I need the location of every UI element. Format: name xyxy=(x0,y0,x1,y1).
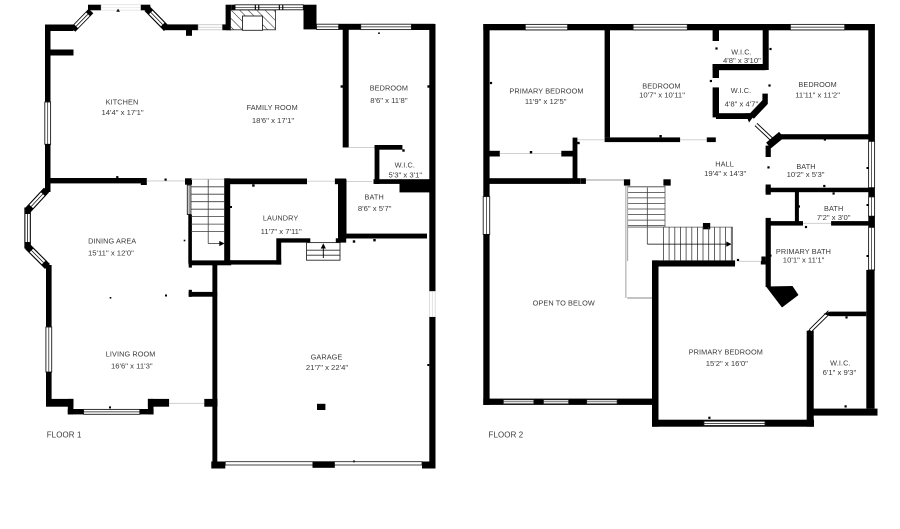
svg-text:W.I.C.: W.I.C. xyxy=(830,358,850,367)
svg-text:PRIMARY BEDROOM: PRIMARY BEDROOM xyxy=(509,86,583,95)
svg-text:KITCHEN: KITCHEN xyxy=(106,98,139,107)
svg-text:PRIMARY BEDROOM: PRIMARY BEDROOM xyxy=(689,348,763,357)
svg-text:19'4" x 14'3": 19'4" x 14'3" xyxy=(704,169,746,178)
svg-text:FAMILY ROOM: FAMILY ROOM xyxy=(247,103,298,112)
svg-text:10'1" x 11'1": 10'1" x 11'1" xyxy=(783,256,825,265)
svg-text:21'7" x 22'4": 21'7" x 22'4" xyxy=(306,363,348,372)
svg-text:11'11" x 11'2": 11'11" x 11'2" xyxy=(795,91,840,100)
svg-text:8'6" x 11'8": 8'6" x 11'8" xyxy=(370,96,408,105)
svg-text:15'11" x 12'0": 15'11" x 12'0" xyxy=(88,249,134,258)
svg-text:6'1" x 9'3": 6'1" x 9'3" xyxy=(823,368,857,377)
svg-text:8'6" x 5'7": 8'6" x 5'7" xyxy=(358,204,392,213)
svg-text:4'8" x 3'10": 4'8" x 3'10" xyxy=(723,56,761,65)
svg-text:DINING AREA: DINING AREA xyxy=(88,237,136,246)
svg-text:OPEN TO BELOW: OPEN TO BELOW xyxy=(533,298,595,307)
svg-text:5'3" x 3'1": 5'3" x 3'1" xyxy=(388,171,422,180)
svg-text:10'2" x 5'3": 10'2" x 5'3" xyxy=(787,170,825,179)
svg-text:W.I.C.: W.I.C. xyxy=(731,86,751,95)
svg-text:16'6" x 11'3": 16'6" x 11'3" xyxy=(111,362,153,371)
svg-text:11'7" x 7'11": 11'7" x 7'11" xyxy=(261,227,302,236)
svg-text:BATH: BATH xyxy=(365,192,384,201)
svg-text:BEDROOM: BEDROOM xyxy=(642,81,680,90)
svg-text:10'7" x 10'11": 10'7" x 10'11" xyxy=(639,91,685,100)
svg-text:FLOOR 1: FLOOR 1 xyxy=(47,431,82,440)
svg-text:4'8" x 4'7": 4'8" x 4'7" xyxy=(725,99,759,108)
svg-text:W.I.C.: W.I.C. xyxy=(395,161,415,170)
svg-text:BATH: BATH xyxy=(824,204,843,213)
svg-text:7'2" x 3'0": 7'2" x 3'0" xyxy=(817,213,851,222)
svg-text:GARAGE: GARAGE xyxy=(311,353,343,362)
svg-text:18'6" x 17'1": 18'6" x 17'1" xyxy=(252,116,294,125)
svg-text:BEDROOM: BEDROOM xyxy=(798,80,836,89)
svg-text:BEDROOM: BEDROOM xyxy=(370,84,408,93)
svg-text:14'4" x 17'1": 14'4" x 17'1" xyxy=(102,108,144,117)
svg-text:11'9" x 12'5": 11'9" x 12'5" xyxy=(525,97,567,106)
svg-text:LIVING ROOM: LIVING ROOM xyxy=(106,350,156,359)
svg-text:15'2" x 16'0": 15'2" x 16'0" xyxy=(706,359,748,368)
svg-text:FLOOR 2: FLOOR 2 xyxy=(489,430,524,439)
svg-text:LAUNDRY: LAUNDRY xyxy=(263,214,298,223)
svg-text:HALL: HALL xyxy=(715,159,734,168)
